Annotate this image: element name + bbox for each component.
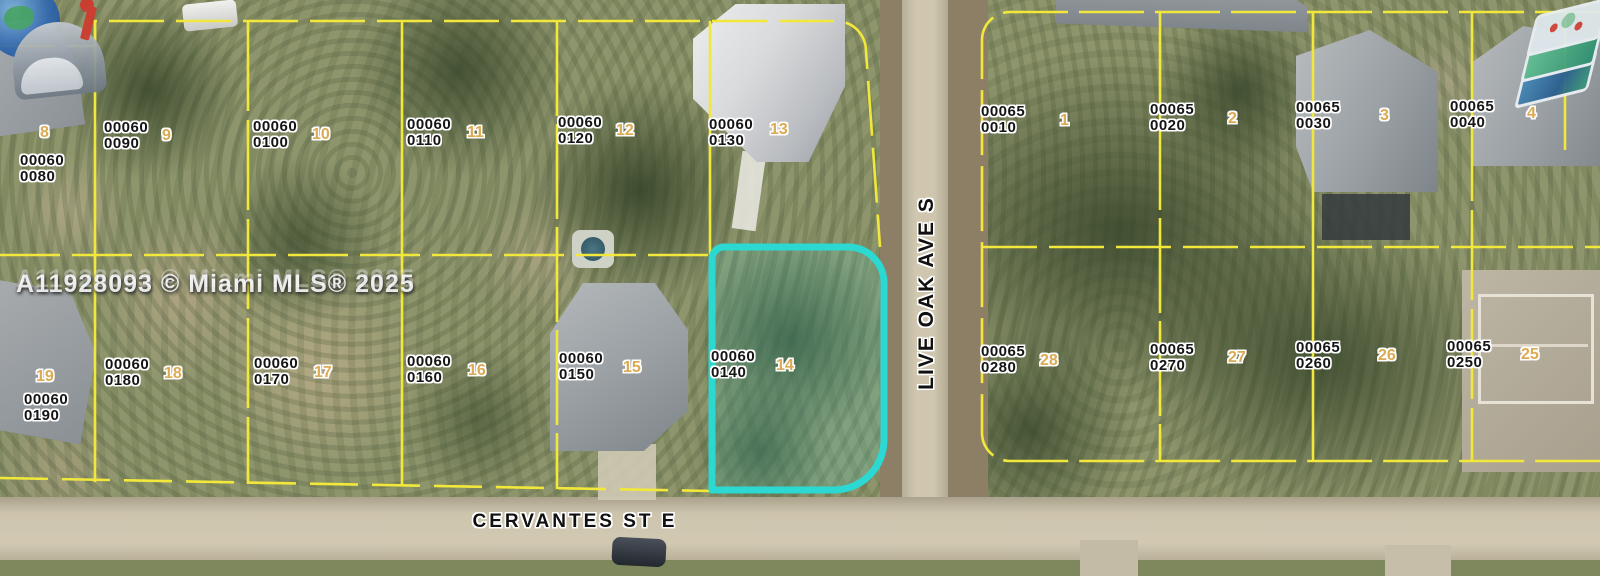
parcel-label: 000600090 [104,120,148,152]
parcel-lot-number: 12 [616,122,634,140]
parcel-lot-number: 28 [1040,352,1058,370]
parcel-label: 000600120 [558,115,602,147]
parcel-label: 000600170 [254,356,298,388]
parcel-label: 000650040 [1450,99,1494,131]
parcel-lot-number: 18 [164,365,182,383]
parcel-label: 000650260 [1296,340,1340,372]
left-block-bottom-boundary [0,478,712,491]
parcel-label: 000600150 [559,351,603,383]
street-label-cervantes: CERVANTES ST E [473,511,678,533]
parcel-label: 000650270 [1150,342,1194,374]
parcel-label: 000600100 [253,119,297,151]
street-label-live-oak: LIVE OAK AVE S [915,196,939,390]
parcel-lot-number: 15 [623,359,641,377]
parcel-lot-number: 14 [776,357,794,375]
parcel-label: 000600130 [709,117,753,149]
parcel-lot-number: 8 [40,124,49,142]
parcel-label-highlighted: 000600140 [711,349,755,381]
parcel-label: 000600180 [105,357,149,389]
parcel-label: 000650010 [981,104,1025,136]
parcel-lot-number: 10 [312,126,330,144]
parcel-lot-number: 2 [1228,110,1237,128]
parcel-lot-number: 3 [1380,107,1389,125]
parcel-label: 000650030 [1296,100,1340,132]
map-layers-logo-icon [1512,6,1600,106]
mailbox-globe-logo-icon [0,0,118,108]
parcel-lot-number: 16 [468,362,486,380]
parcel-lot-number: 27 [1228,349,1246,367]
parcel-label: 000600080 [20,153,64,185]
parcel-lot-number: 26 [1378,347,1396,365]
parcel-label: 000600190 [24,392,68,424]
parcel-lot-number: 19 [36,368,54,386]
mls-watermark: A11928093 © Miami MLS® 2025 [16,270,415,299]
parcel-lot-number: 25 [1521,346,1539,364]
parcel-lot-number: 17 [314,364,332,382]
right-block-outline [982,12,1600,461]
parcel-label: 000600110 [407,117,451,149]
parcel-lot-number: 9 [162,127,171,145]
parcel-lot-number: 4 [1527,105,1536,123]
parcel-label: 000600160 [407,354,451,386]
parcel-label: 000650020 [1150,102,1194,134]
parcel-lot-number: 13 [770,121,788,139]
parcel-label: 000650280 [981,344,1025,376]
aerial-parcel-map: 000600080 8 000600090 9 000600100 10 000… [0,0,1600,576]
parcel-label: 000650250 [1447,339,1491,371]
parcel-lot-number: 1 [1060,112,1069,130]
parcel-lot-number: 11 [467,124,484,142]
